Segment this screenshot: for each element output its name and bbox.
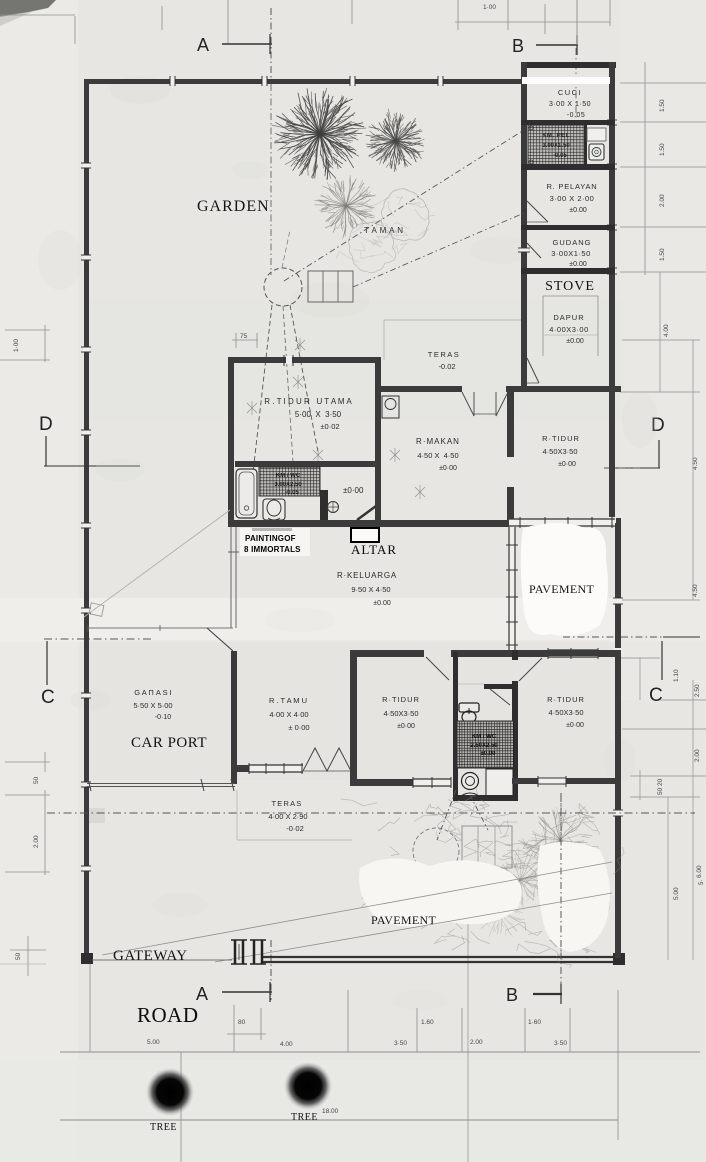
svg-text:B: B [506, 985, 518, 1005]
svg-text:A: A [196, 984, 208, 1004]
svg-text:3·00 X 2·00: 3·00 X 2·00 [550, 194, 595, 203]
svg-text:2.50: 2.50 [694, 684, 701, 697]
svg-text:4·50X3·50: 4·50X3·50 [542, 447, 577, 456]
svg-text:5·50 X 5·00: 5·50 X 5·00 [133, 701, 172, 710]
svg-text:STOVE: STOVE [545, 279, 595, 294]
svg-text:50 20: 50 20 [657, 778, 664, 795]
svg-text:5·: 5· [699, 880, 705, 885]
svg-text:±0·00: ±0·00 [397, 723, 415, 730]
svg-text:-0·10: -0·10 [155, 714, 171, 721]
svg-text:R·TIDUR: R·TIDUR [382, 695, 420, 704]
svg-text:ALTAR: ALTAR [351, 542, 397, 557]
svg-text:1.50: 1.50 [659, 143, 666, 156]
svg-text:±0.00: ±0.00 [566, 338, 584, 345]
svg-text:1.60: 1.60 [421, 1019, 434, 1026]
svg-text:3.00X1.50: 3.00X1.50 [542, 143, 570, 149]
svg-text:R·MAKAN: R·MAKAN [416, 437, 460, 446]
svg-text:2.50X2.50: 2.50X2.50 [470, 743, 498, 749]
svg-text:KM. PEL: KM. PEL [542, 133, 570, 139]
svg-text:-0.05: -0.05 [567, 112, 585, 119]
svg-text:R·KELUARGA: R·KELUARGA [337, 571, 397, 580]
svg-text:R. PELAYAN: R. PELAYAN [546, 182, 597, 191]
svg-text:4·00X3·00: 4·00X3·00 [549, 325, 589, 334]
svg-text:50: 50 [33, 776, 40, 784]
svg-text:6.00: 6.00 [696, 865, 703, 878]
svg-text:±0·00: ±0·00 [343, 486, 364, 495]
svg-text:PAVEMENT: PAVEMENT [529, 582, 594, 596]
svg-text:CUCI: CUCI [558, 88, 582, 97]
svg-text:±0.00: ±0.00 [569, 207, 587, 214]
svg-text:B: B [512, 36, 524, 56]
svg-text:18.00: 18.00 [322, 1108, 339, 1115]
svg-text:4.00: 4.00 [663, 324, 670, 337]
svg-text:-0.02: -0.02 [438, 362, 455, 371]
svg-text:±0.00: ±0.00 [569, 261, 587, 268]
svg-text:2.00: 2.00 [33, 835, 40, 848]
svg-text:3·00 X 1·50: 3·00 X 1·50 [549, 101, 591, 108]
svg-text:CAR PORT: CAR PORT [131, 735, 207, 751]
svg-text:R·TIDUR: R·TIDUR [542, 434, 580, 443]
svg-text:1·60: 1·60 [528, 1019, 541, 1026]
svg-text:±0.00: ±0.00 [373, 600, 391, 607]
svg-text:T A M A N: T A M A N [364, 226, 403, 235]
svg-text:4·50X3·50: 4·50X3·50 [548, 708, 583, 717]
svg-text:R . T I D U R U T A M A: R . T I D U R U T A M A [264, 397, 352, 406]
svg-text:2.00: 2.00 [694, 749, 701, 762]
svg-text:A: A [197, 35, 209, 55]
svg-text:4·50X3·50: 4·50X3·50 [383, 709, 418, 718]
svg-text:8 IMMORTALS: 8 IMMORTALS [244, 545, 301, 554]
svg-text:C: C [649, 685, 663, 706]
svg-text:±0·00: ±0·00 [558, 461, 576, 468]
svg-text:ROAD: ROAD [137, 1003, 199, 1027]
svg-text:9·50 X 4·50: 9·50 X 4·50 [351, 585, 390, 594]
svg-text:50: 50 [15, 952, 22, 960]
svg-text:KM / WC: KM / WC [276, 473, 301, 479]
svg-text:3·00X1·50: 3·00X1·50 [551, 249, 591, 258]
svg-text:R . T A M U: R . T A M U [269, 696, 307, 705]
svg-text:±0·00: ±0·00 [566, 722, 584, 729]
svg-text:5.00: 5.00 [673, 887, 680, 900]
svg-text:1.50: 1.50 [659, 248, 666, 261]
svg-text:5.00: 5.00 [147, 1039, 160, 1046]
svg-text:4·00 X 2·90: 4·00 X 2·90 [268, 812, 307, 821]
svg-text:C: C [41, 687, 55, 708]
svg-text:D: D [39, 414, 53, 435]
svg-text:TREE: TREE [150, 1122, 177, 1133]
svg-text:1.50: 1.50 [659, 99, 666, 112]
svg-text:1.10: 1.10 [673, 669, 680, 682]
svg-text:GUDANG: GUDANG [553, 238, 592, 247]
svg-text:TERAS: TERAS [428, 350, 461, 359]
svg-text:75: 75 [240, 333, 248, 340]
svg-text:G A Π A S I: G A Π A S I [134, 688, 172, 697]
svg-text:±0·02: ±0·02 [320, 422, 339, 431]
svg-text:GARDEN: GARDEN [197, 198, 270, 215]
svg-text:2.00: 2.00 [470, 1039, 483, 1046]
svg-text:4.00: 4.00 [280, 1041, 293, 1048]
svg-text:3.00X2.50: 3.00X2.50 [274, 482, 302, 488]
svg-text:4·00 X 4·00: 4·00 X 4·00 [269, 710, 308, 719]
svg-text:±0.00: ±0.00 [481, 751, 497, 757]
svg-text:-0.05: -0.05 [285, 490, 299, 496]
svg-text:1·00: 1·00 [13, 339, 20, 352]
svg-text:± 0·00: ± 0·00 [288, 723, 309, 732]
svg-text:3·50: 3·50 [554, 1040, 567, 1047]
svg-text:GATEWAY: GATEWAY [113, 948, 188, 964]
svg-text:KM / WC: KM / WC [472, 734, 497, 740]
svg-text:PAINTINGOF: PAINTINGOF [245, 534, 296, 543]
svg-text:1·00: 1·00 [483, 4, 496, 11]
svg-text:80: 80 [238, 1019, 246, 1026]
svg-text:DAPUR: DAPUR [553, 313, 584, 322]
svg-text:5·00 X 3·50: 5·00 X 3·50 [295, 410, 342, 419]
svg-text:-0.05: -0.05 [553, 153, 567, 159]
svg-text:-0·02: -0·02 [286, 824, 304, 833]
svg-text:±0·00: ±0·00 [439, 465, 457, 472]
svg-text:R·TIDUR: R·TIDUR [547, 695, 585, 704]
svg-text:2.00: 2.00 [659, 194, 666, 207]
svg-text:4·50 X 4·50: 4·50 X 4·50 [417, 451, 458, 460]
svg-text:TREE: TREE [291, 1112, 318, 1123]
svg-text:TERAS: TERAS [271, 799, 302, 808]
svg-text:3·50: 3·50 [394, 1040, 407, 1047]
svg-text:4.50: 4.50 [692, 584, 699, 597]
